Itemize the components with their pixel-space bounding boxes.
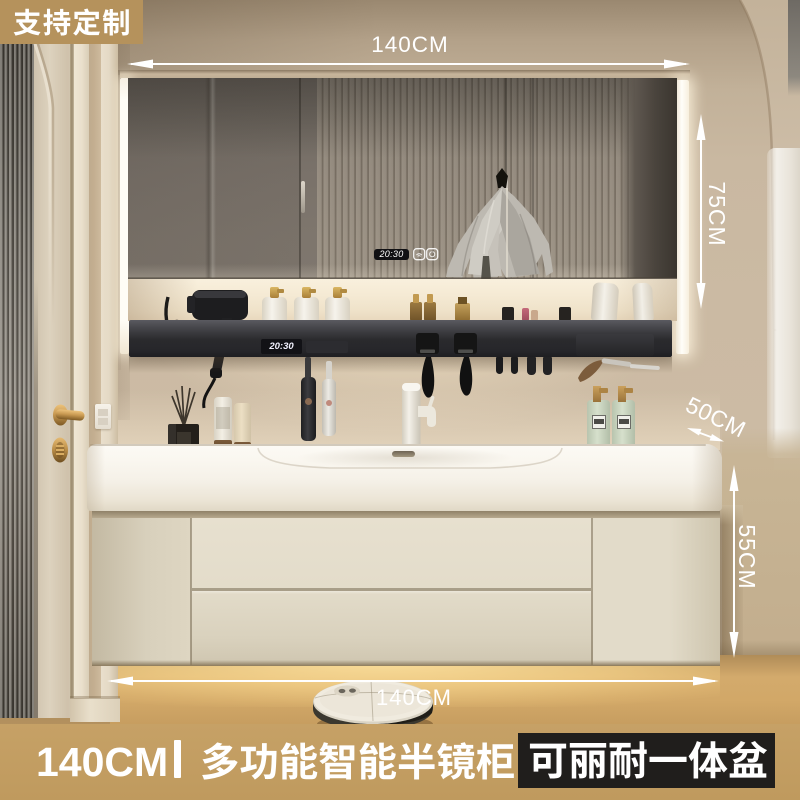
svg-text:55CM: 55CM [734,524,760,589]
svg-text:140CM: 140CM [376,685,452,710]
svg-text:75CM: 75CM [704,181,730,246]
svg-text:140CM: 140CM [371,32,449,57]
svg-text:50CM: 50CM [682,391,750,442]
